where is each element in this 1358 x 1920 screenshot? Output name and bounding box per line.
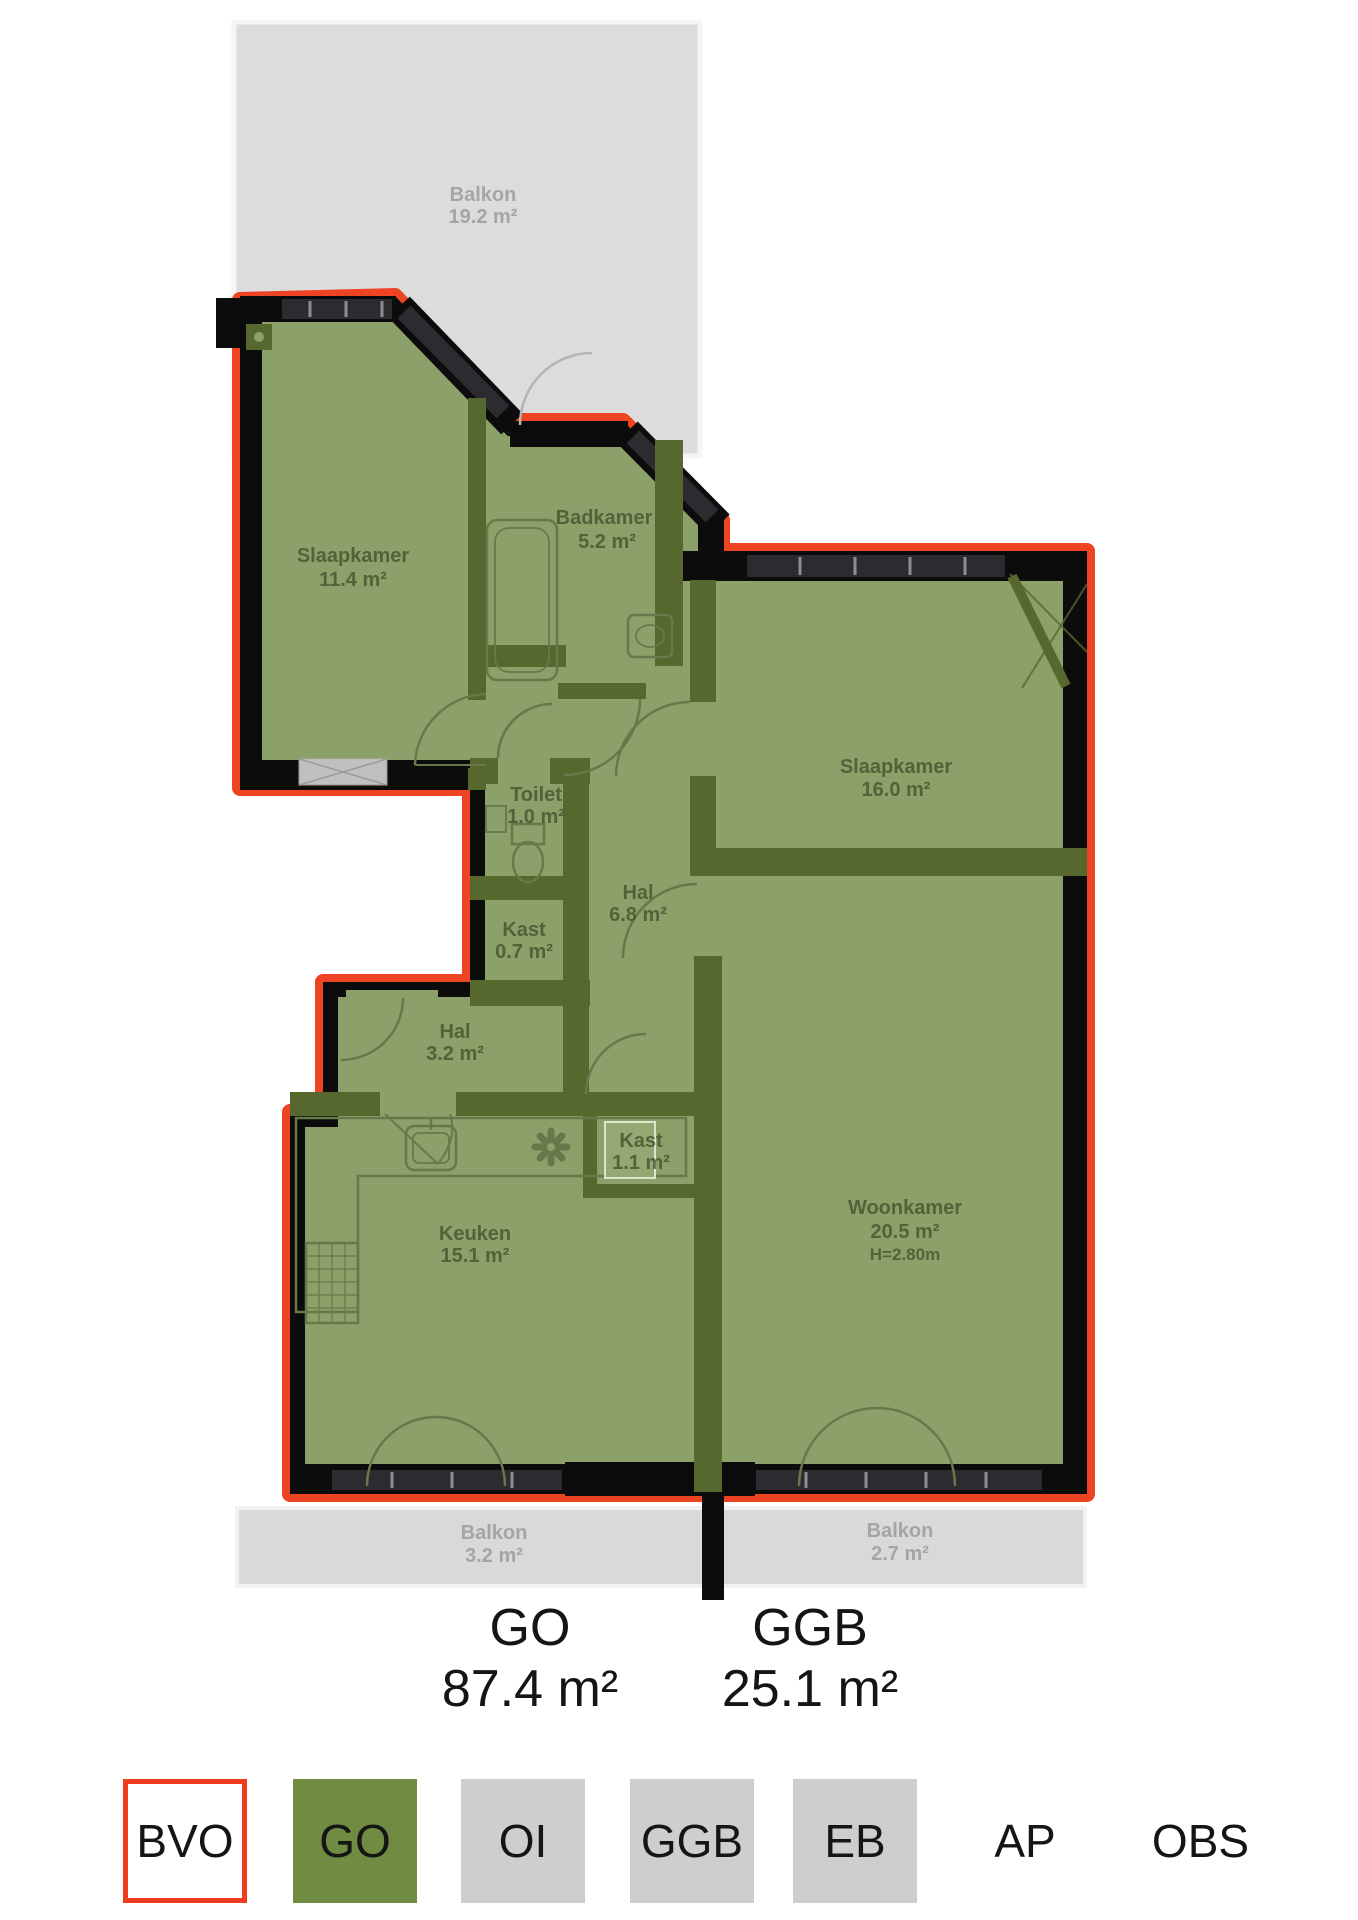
legend-ap-label: AP [994,1814,1055,1868]
label-balkon-br: Balkon [867,1520,934,1542]
label-hal-2: Hal [439,1021,470,1043]
summary-ggb: GGB 25.1 m² [660,1598,960,1720]
svg-text:1.0 m²: 1.0 m² [507,806,565,828]
label-slaapkamer-1: Slaapkamer [297,545,410,567]
legend-ggb: GGB [630,1779,754,1903]
svg-text:H=2.80m: H=2.80m [870,1245,940,1264]
summary-ggb-label: GGB [660,1598,960,1659]
label-kast-1: Kast [502,919,546,941]
label-balkon-top: Balkon [450,184,517,206]
svg-text:0.7 m²: 0.7 m² [495,941,553,963]
legend-bvo-label: BVO [136,1814,233,1868]
label-toilet: Toilet [510,784,562,806]
svg-text:5.2 m²: 5.2 m² [578,531,636,553]
label-slaapkamer-2: Slaapkamer [840,756,953,778]
label-keuken: Keuken [439,1223,511,1245]
floorplan-page: Balkon 19.2 m² Slaapkamer 11.4 m² Badkam… [0,0,1358,1920]
label-woonkamer: Woonkamer [848,1197,962,1219]
legend-oi-label: OI [499,1814,548,1868]
summary-go: GO 87.4 m² [380,1598,680,1720]
summary-go-value: 87.4 m² [380,1659,680,1720]
label-kast-2: Kast [619,1130,663,1152]
entrance-opening [346,990,438,1006]
legend-bvo: BVO [123,1779,247,1903]
closet-box-wall [583,1096,699,1110]
svg-text:3.2 m²: 3.2 m² [465,1545,523,1567]
svg-text:15.1 m²: 15.1 m² [441,1245,510,1267]
label-balkon-bl: Balkon [461,1522,528,1544]
legend-obs: OBS [1128,1779,1273,1903]
summary-ggb-value: 25.1 m² [660,1659,960,1720]
wall-tab-top-left [216,298,242,348]
svg-text:6.8 m²: 6.8 m² [609,904,667,926]
legend-oi: OI [461,1779,585,1903]
legend-go: GO [293,1779,417,1903]
hob-flower [535,1131,567,1163]
summary-go-label: GO [380,1598,680,1659]
svg-text:11.4 m²: 11.4 m² [319,569,387,591]
legend-ggb-label: GGB [641,1814,743,1868]
svg-text:20.5 m²: 20.5 m² [871,1221,940,1243]
svg-text:2.7 m²: 2.7 m² [871,1543,929,1565]
label-hal-1: Hal [622,882,653,904]
svg-text:1.1 m²: 1.1 m² [612,1152,670,1174]
legend-obs-label: OBS [1152,1814,1249,1868]
legend-ap: AP [960,1779,1090,1903]
svg-text:19.2 m²: 19.2 m² [449,206,518,228]
legend-eb-label: EB [824,1814,885,1868]
svg-text:3.2 m²: 3.2 m² [426,1043,484,1065]
legend-go-label: GO [319,1814,391,1868]
legend-eb: EB [793,1779,917,1903]
balcony-divider-tab [702,1492,724,1600]
svg-text:16.0 m²: 16.0 m² [862,779,931,801]
label-badkamer: Badkamer [556,507,653,529]
